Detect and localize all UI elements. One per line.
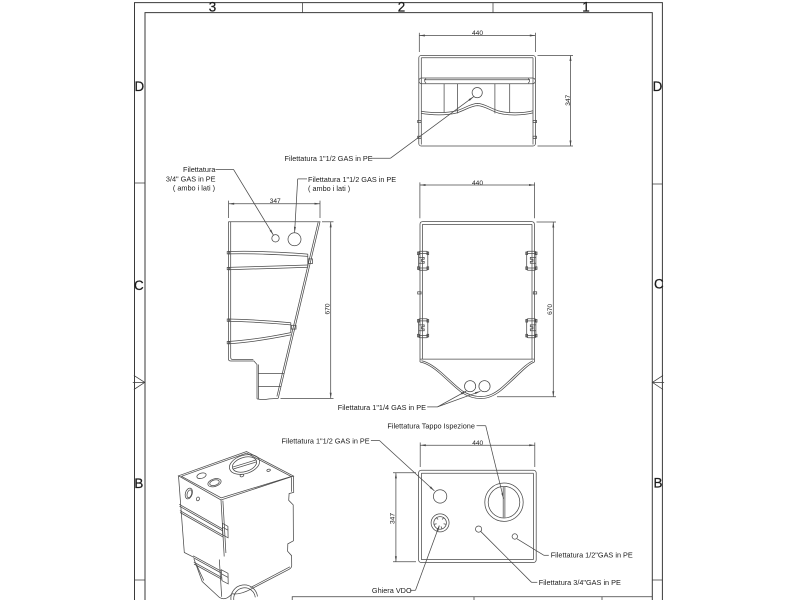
svg-text:347: 347 bbox=[390, 513, 397, 524]
svg-text:D: D bbox=[134, 79, 144, 94]
svg-text:Filettatura 3/4"GAS in PE: Filettatura 3/4"GAS in PE bbox=[539, 578, 621, 587]
svg-text:C: C bbox=[134, 278, 144, 293]
svg-text:670: 670 bbox=[547, 304, 554, 315]
svg-text:3/4" GAS in PE: 3/4" GAS in PE bbox=[166, 174, 216, 183]
svg-text:Filettatura 1"1/2 GAS in PE: Filettatura 1"1/2 GAS in PE bbox=[285, 154, 373, 163]
svg-text:670: 670 bbox=[324, 303, 331, 314]
svg-text:Filettatura 1/2"GAS in PE: Filettatura 1/2"GAS in PE bbox=[551, 551, 633, 560]
svg-text:2: 2 bbox=[398, 0, 405, 15]
svg-text:3: 3 bbox=[209, 0, 216, 15]
svg-text:C: C bbox=[654, 277, 664, 292]
svg-text:347: 347 bbox=[270, 198, 281, 205]
svg-text:440: 440 bbox=[472, 440, 483, 447]
svg-text:D: D bbox=[653, 79, 663, 94]
svg-text:440: 440 bbox=[472, 180, 483, 187]
svg-text:( ambo i lati ): ( ambo i lati ) bbox=[173, 183, 215, 192]
svg-text:347: 347 bbox=[565, 94, 572, 105]
svg-text:Ghiera VDO: Ghiera VDO bbox=[372, 586, 412, 595]
svg-text:B: B bbox=[654, 476, 663, 491]
svg-text:1: 1 bbox=[582, 0, 589, 15]
svg-text:( ambo i lati ): ( ambo i lati ) bbox=[308, 184, 350, 193]
svg-text:Filettatura 1"1/4 GAS in PE: Filettatura 1"1/4 GAS in PE bbox=[338, 403, 426, 412]
svg-text:Filettatura: Filettatura bbox=[183, 165, 216, 174]
svg-text:B: B bbox=[134, 476, 143, 491]
svg-text:Filettatura 1"1/2 GAS in PE: Filettatura 1"1/2 GAS in PE bbox=[308, 175, 396, 184]
svg-text:440: 440 bbox=[472, 30, 483, 37]
svg-text:Filettatura Tappo Ispezione: Filettatura Tappo Ispezione bbox=[387, 421, 474, 430]
svg-text:Filettatura 1"1/2 GAS in PE: Filettatura 1"1/2 GAS in PE bbox=[282, 436, 370, 445]
